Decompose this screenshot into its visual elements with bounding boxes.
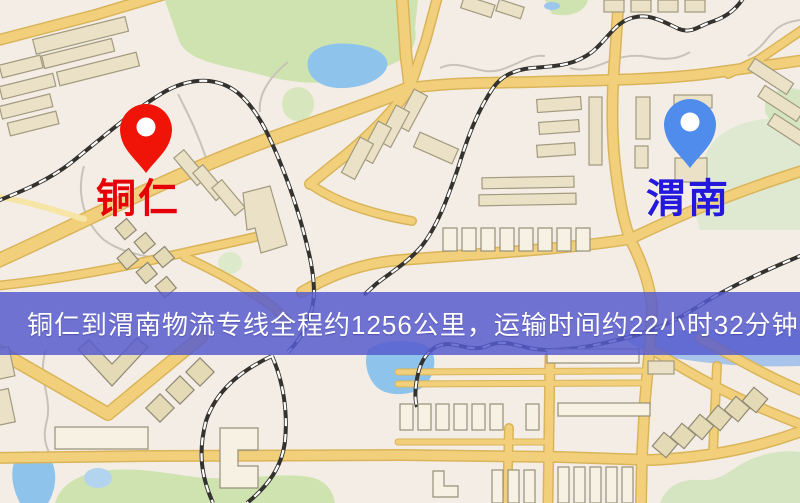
destination-pin-icon[interactable] (663, 93, 717, 169)
route-info-banner: 铜仁到渭南物流专线全程约1256公里，运输时间约22小时32分钟. (0, 292, 800, 355)
origin-pin-icon[interactable] (119, 98, 173, 174)
map-canvas[interactable] (0, 0, 800, 503)
route-map-screenshot: 铜仁 渭南 铜仁到渭南物流专线全程约1256公里，运输时间约22小时32分钟. (0, 0, 800, 503)
route-info-text: 铜仁到渭南物流专线全程约1256公里，运输时间约22小时32分钟. (27, 305, 800, 342)
